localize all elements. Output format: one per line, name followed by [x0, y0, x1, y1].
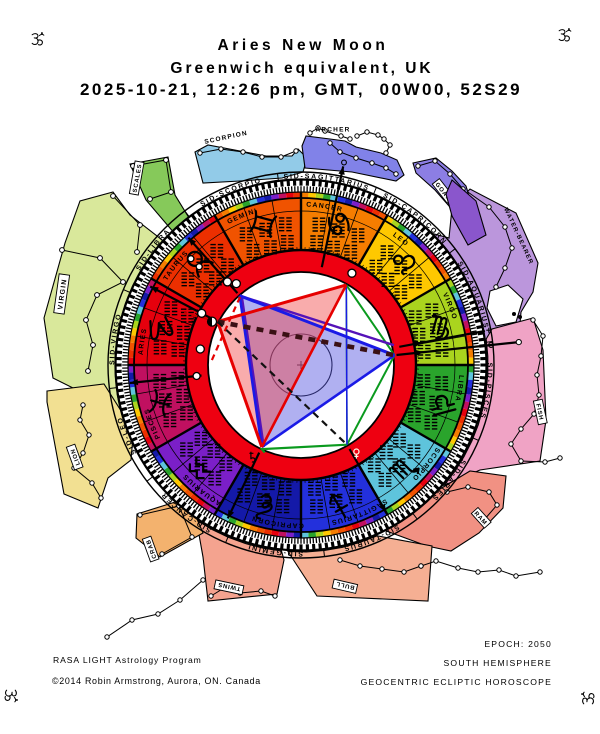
svg-text:SOUTH HEMISPHERE: SOUTH HEMISPHERE: [444, 658, 553, 668]
svg-text:RASA LIGHT Astrology Program: RASA LIGHT Astrology Program: [53, 655, 202, 665]
svg-text:©2014 Robin Armstrong, Aurora,: ©2014 Robin Armstrong, Aurora, ON. Canad…: [52, 676, 261, 686]
svg-text:EPOCH: 2050: EPOCH: 2050: [484, 639, 552, 649]
svg-text:Greenwich equivalent, UK: Greenwich equivalent, UK: [170, 60, 433, 77]
svg-text:ARCHER: ARCHER: [315, 126, 350, 133]
svg-text:2025-10-21, 12:26 pm, GMT, 00: 2025-10-21, 12:26 pm, GMT, 00W00, 52S29: [80, 80, 522, 99]
svg-text:GEOCENTRIC ECLIPTIC HOROSCOPE: GEOCENTRIC ECLIPTIC HOROSCOPE: [361, 677, 552, 687]
svg-text:Aries New Moon: Aries New Moon: [218, 37, 389, 54]
